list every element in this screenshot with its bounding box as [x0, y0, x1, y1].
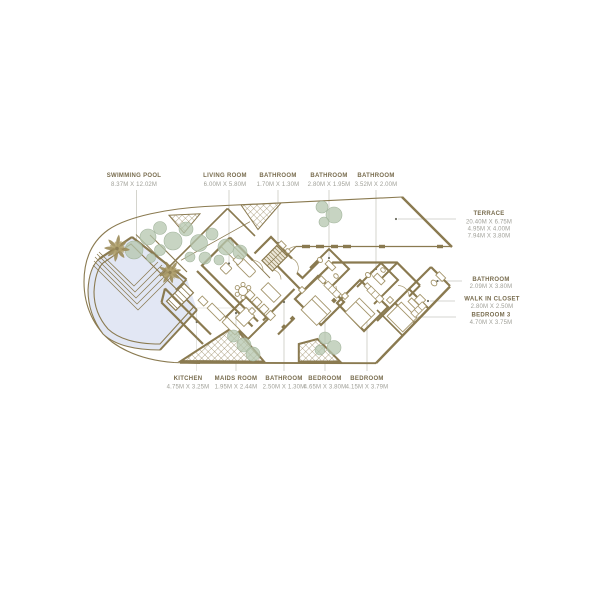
svg-text:20.40M X 6.75M: 20.40M X 6.75M — [466, 220, 512, 226]
svg-text:4.65M X 3.80M: 4.65M X 3.80M — [304, 385, 347, 391]
svg-text:BEDROOM: BEDROOM — [350, 376, 383, 382]
svg-text:2.50M X 1.30M: 2.50M X 1.30M — [263, 385, 306, 391]
svg-text:BATHROOM: BATHROOM — [265, 376, 302, 382]
svg-text:3.52M X 2.00M: 3.52M X 2.00M — [355, 182, 398, 188]
svg-text:LIVING ROOM: LIVING ROOM — [203, 173, 247, 179]
svg-text:8.37M X 12.02M: 8.37M X 12.02M — [111, 182, 157, 188]
svg-text:BEDROOM 3: BEDROOM 3 — [471, 313, 510, 319]
svg-text:2.09M X 3.80M: 2.09M X 3.80M — [470, 284, 513, 290]
svg-text:4.15M X 3.79M: 4.15M X 3.79M — [346, 385, 389, 391]
svg-text:1.95M X 2.44M: 1.95M X 2.44M — [215, 385, 258, 391]
svg-text:SWIMMING POOL: SWIMMING POOL — [107, 173, 162, 179]
svg-text:4.95M X 4.00M: 4.95M X 4.00M — [468, 227, 511, 233]
svg-text:MAIDS ROOM: MAIDS ROOM — [215, 376, 258, 382]
svg-text:BATHROOM: BATHROOM — [310, 173, 347, 179]
svg-text:2.80M X 2.50M: 2.80M X 2.50M — [471, 304, 514, 310]
svg-text:7.94M X 3.80M: 7.94M X 3.80M — [468, 234, 511, 240]
svg-text:BEDROOM: BEDROOM — [308, 376, 341, 382]
svg-text:WALK IN CLOSET: WALK IN CLOSET — [464, 297, 520, 303]
svg-text:1.70M X 1.30M: 1.70M X 1.30M — [257, 182, 300, 188]
svg-text:2.80M X 1.95M: 2.80M X 1.95M — [308, 182, 351, 188]
svg-text:KITCHEN: KITCHEN — [174, 376, 203, 382]
svg-text:6.00M X 5.80M: 6.00M X 5.80M — [204, 182, 247, 188]
svg-text:BATHROOM: BATHROOM — [472, 277, 509, 283]
svg-text:4.70M X 3.75M: 4.70M X 3.75M — [470, 320, 513, 326]
svg-text:TERRACE: TERRACE — [473, 211, 504, 217]
svg-text:4.75M X 3.25M: 4.75M X 3.25M — [167, 385, 210, 391]
svg-text:BATHROOM: BATHROOM — [259, 173, 296, 179]
svg-text:BATHROOM: BATHROOM — [357, 173, 394, 179]
